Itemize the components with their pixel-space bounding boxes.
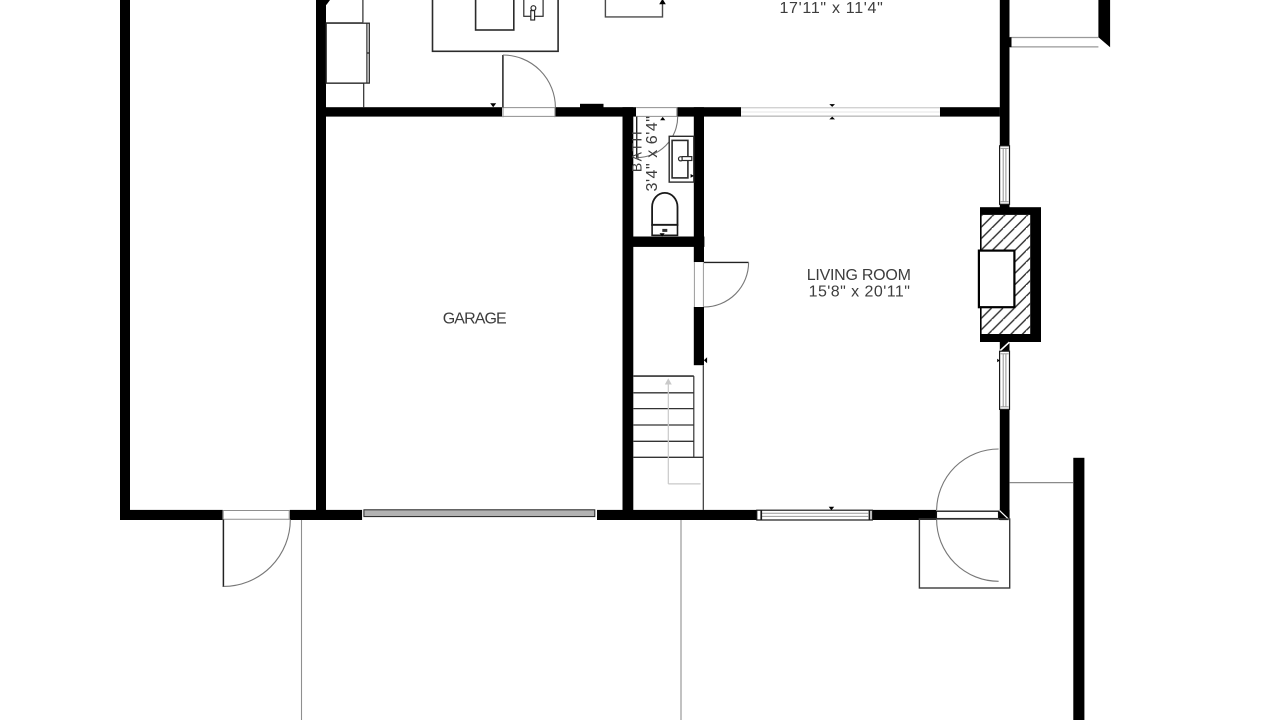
- svg-text:GARAGE: GARAGE: [443, 311, 506, 328]
- svg-text:LIVING ROOM: LIVING ROOM: [807, 267, 911, 284]
- svg-text:3'4" x 6'4": 3'4" x 6'4": [644, 115, 661, 191]
- svg-text:15'8" x 20'11": 15'8" x 20'11": [809, 284, 911, 301]
- svg-text:17'11" x 11'4": 17'11" x 11'4": [779, 0, 883, 17]
- svg-text:BATH: BATH: [629, 130, 645, 172]
